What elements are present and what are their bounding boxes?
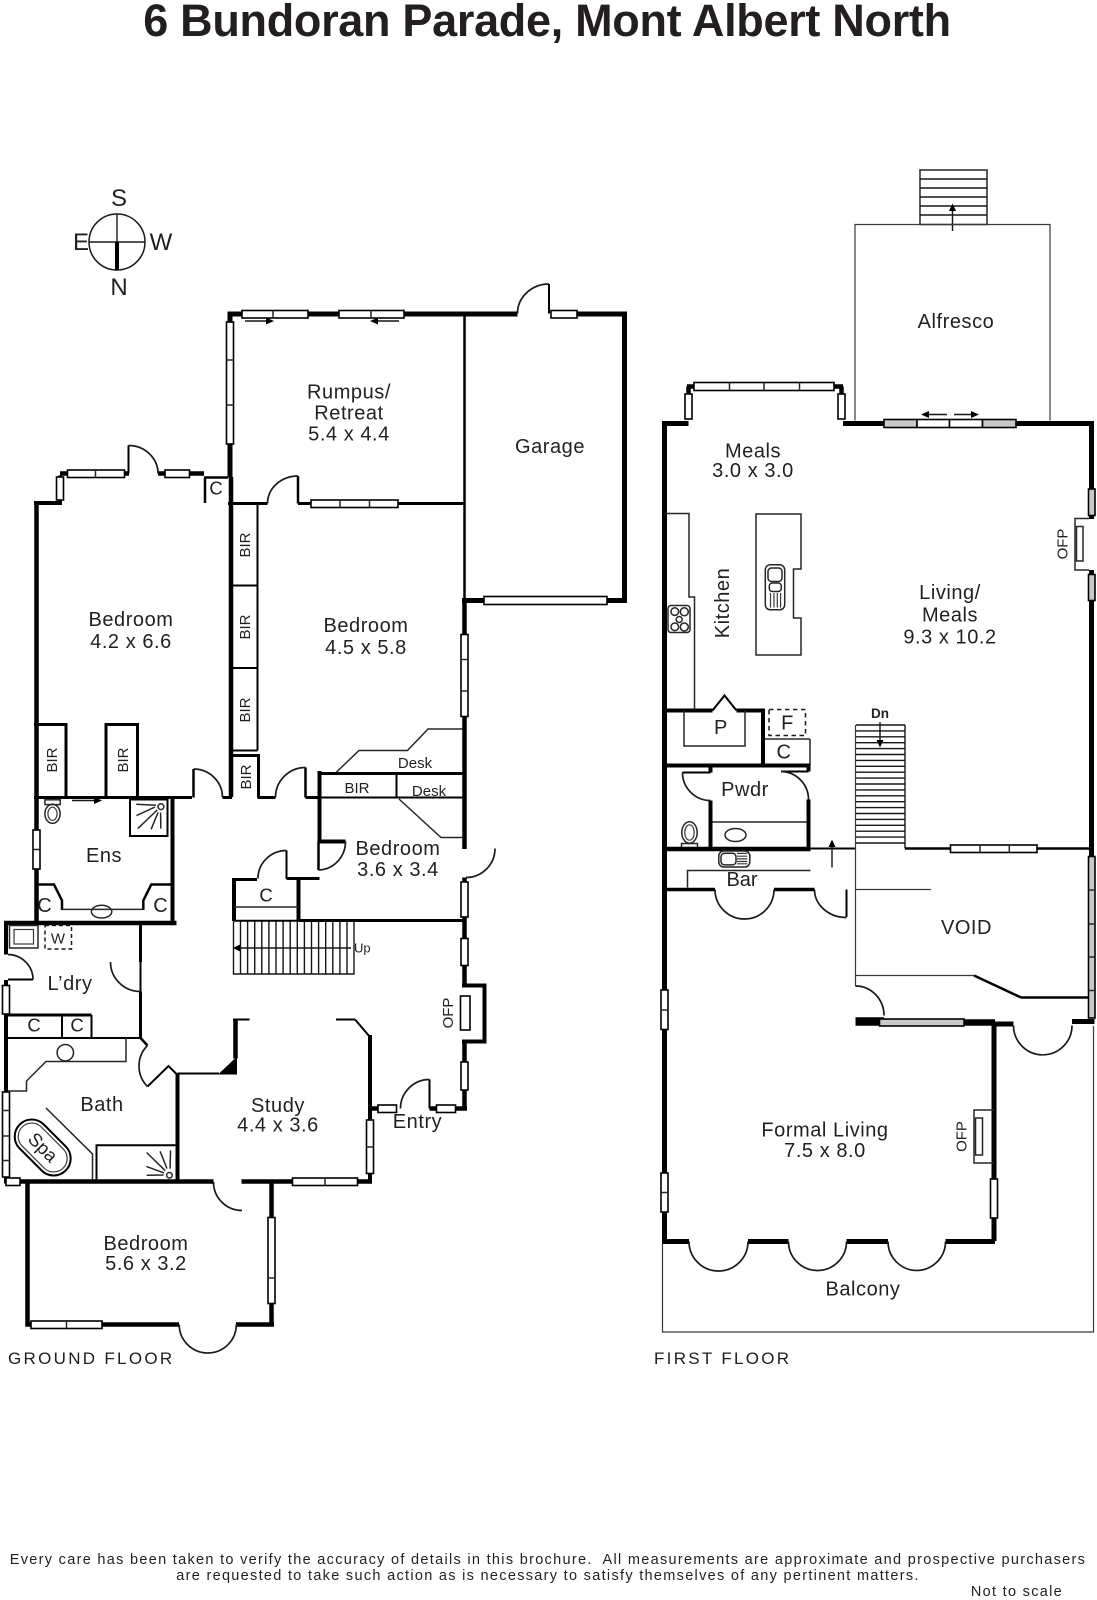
svg-text:3.6 x 3.4: 3.6 x 3.4	[357, 859, 439, 881]
svg-text:Every care has been taken to v: Every care has been taken to verify the …	[10, 1552, 1086, 1568]
svg-text:Bedroom: Bedroom	[355, 838, 440, 860]
svg-text:Bar: Bar	[726, 869, 757, 891]
svg-text:Bedroom: Bedroom	[103, 1233, 188, 1255]
svg-text:Desk: Desk	[398, 755, 433, 772]
svg-text:Dn: Dn	[871, 706, 889, 721]
svg-text:3.0 x 3.0: 3.0 x 3.0	[712, 460, 794, 482]
svg-text:N: N	[110, 274, 127, 301]
svg-text:BIR: BIR	[115, 747, 132, 772]
svg-text:E: E	[73, 229, 89, 256]
svg-text:L’dry: L’dry	[48, 973, 93, 995]
svg-text:OFP: OFP	[440, 998, 457, 1029]
svg-text:Retreat: Retreat	[314, 403, 383, 425]
svg-text:Garage: Garage	[515, 436, 585, 458]
svg-text:C: C	[209, 478, 222, 499]
svg-text:C: C	[27, 1015, 40, 1036]
svg-text:Alfresco: Alfresco	[918, 311, 995, 333]
svg-text:C: C	[37, 895, 51, 917]
svg-text:Up: Up	[354, 941, 371, 956]
svg-text:Living/: Living/	[919, 582, 981, 604]
svg-text:Entry: Entry	[393, 1111, 442, 1133]
svg-text:4.5 x 5.8: 4.5 x 5.8	[325, 637, 407, 659]
svg-text:Balcony: Balcony	[825, 1279, 900, 1301]
svg-text:7.5 x 8.0: 7.5 x 8.0	[784, 1140, 866, 1162]
svg-text:Ens: Ens	[86, 845, 122, 867]
svg-text:Bedroom: Bedroom	[323, 615, 408, 637]
svg-text:BIR: BIR	[237, 697, 254, 722]
svg-text:F: F	[781, 713, 794, 735]
svg-text:5.4 x 4.4: 5.4 x 4.4	[308, 424, 390, 446]
svg-text:9.3 x 10.2: 9.3 x 10.2	[903, 627, 996, 649]
svg-text:Formal Living: Formal Living	[761, 1120, 888, 1142]
svg-text:W: W	[51, 931, 66, 948]
svg-text:Pwdr: Pwdr	[721, 779, 769, 801]
svg-text:4.2 x 6.6: 4.2 x 6.6	[90, 631, 172, 653]
svg-text:P: P	[714, 717, 728, 739]
svg-text:Rumpus/: Rumpus/	[307, 382, 391, 404]
svg-text:BIR: BIR	[344, 780, 369, 797]
svg-text:Bath: Bath	[80, 1094, 123, 1116]
svg-text:GROUND FLOOR: GROUND FLOOR	[8, 1349, 174, 1368]
svg-text:Desk: Desk	[412, 783, 447, 800]
svg-text:VOID: VOID	[941, 917, 992, 939]
svg-text:OFP: OFP	[954, 1121, 971, 1152]
svg-text:S: S	[111, 185, 127, 212]
svg-text:6 Bundoran Parade, Mont Albert: 6 Bundoran Parade, Mont Albert North	[143, 0, 951, 46]
svg-text:C: C	[70, 1015, 83, 1036]
svg-text:4.4 x 3.6: 4.4 x 3.6	[237, 1115, 319, 1137]
svg-text:C: C	[259, 885, 272, 906]
svg-text:Kitchen: Kitchen	[712, 568, 734, 639]
svg-text:BIR: BIR	[237, 614, 254, 639]
svg-text:C: C	[153, 895, 167, 917]
svg-text:Not to scale: Not to scale	[971, 1584, 1063, 1600]
svg-text:BIR: BIR	[237, 532, 254, 557]
svg-text:OFP: OFP	[1055, 529, 1072, 560]
svg-text:FIRST FLOOR: FIRST FLOOR	[654, 1349, 791, 1368]
svg-text:are requested to take such act: are requested to take such action as is …	[176, 1568, 919, 1584]
svg-text:BIR: BIR	[44, 747, 61, 772]
svg-text:Bedroom: Bedroom	[88, 609, 173, 631]
svg-text:BIR: BIR	[238, 764, 255, 789]
svg-text:C: C	[777, 742, 792, 764]
svg-text:Meals: Meals	[922, 605, 978, 627]
svg-text:W: W	[150, 229, 173, 256]
svg-text:5.6 x 3.2: 5.6 x 3.2	[105, 1253, 187, 1275]
